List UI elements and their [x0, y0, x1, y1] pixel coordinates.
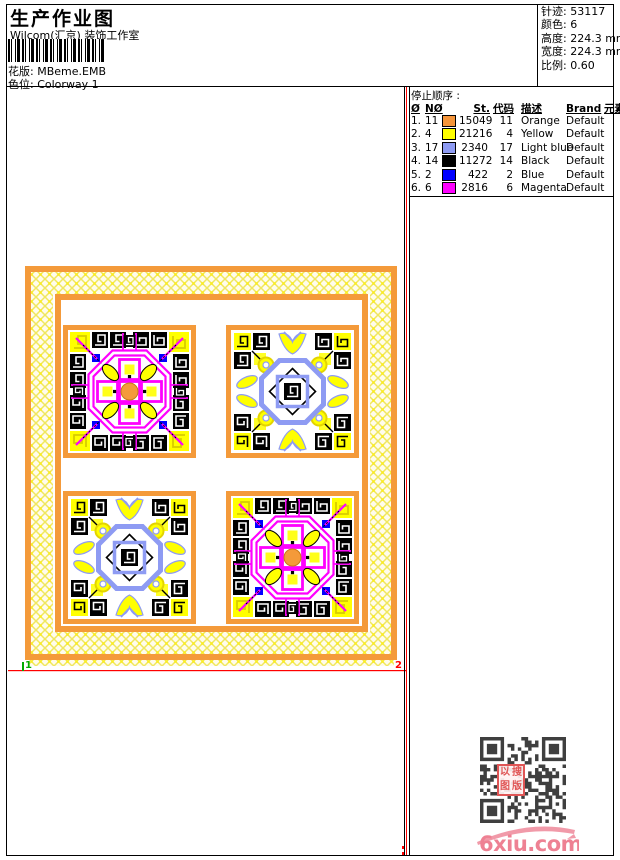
- logo-text: 6xiu.com: [479, 832, 579, 856]
- code-cell: 2: [490, 169, 515, 181]
- site-logo: 6xiu.com: [477, 822, 579, 856]
- description-cell: Black: [515, 155, 564, 167]
- col-element: 元素: [604, 101, 620, 116]
- table-row: 3. 17 2340 17 Light blue Default: [411, 141, 612, 154]
- brand-cell: Default: [564, 128, 604, 140]
- stat-row: 颜色: 6: [541, 18, 613, 31]
- seq-cell: 2.: [411, 128, 425, 140]
- color-swatch: [442, 169, 456, 181]
- table-row: 2. 4 21216 4 Yellow Default: [411, 128, 612, 141]
- design-stats-panel: 针迹: 53117 颜色: 6 高度: 224.3 mm 宽度: 224.3 m…: [541, 5, 613, 72]
- stat-value: 224.3 mm: [570, 45, 620, 58]
- col-stitches: St.: [459, 103, 490, 115]
- stat-label: 比例:: [541, 59, 567, 72]
- description-cell: Orange: [515, 115, 564, 127]
- seq-cell: 3.: [411, 142, 425, 154]
- color-swatch: [442, 182, 456, 194]
- colorway-value: Colorway 1: [37, 78, 98, 91]
- stamp-char: 图: [500, 782, 510, 792]
- description-cell: Yellow: [515, 128, 564, 140]
- code-cell: 6: [490, 182, 515, 194]
- description-cell: Blue: [515, 169, 564, 181]
- col-slot: Ø: [411, 103, 425, 115]
- stat-row: 宽度: 224.3 mm: [541, 45, 613, 58]
- col-brand: Brand: [564, 103, 604, 115]
- stat-label: 针迹:: [541, 5, 567, 18]
- stat-label: 高度:: [541, 32, 567, 45]
- needle-cell: 4: [425, 128, 442, 140]
- stitches-cell: 11272: [459, 155, 490, 167]
- color-swatch: [442, 142, 456, 154]
- seq-cell: 4.: [411, 155, 425, 167]
- stat-value: 224.3 mm: [570, 32, 620, 45]
- stitches-cell: 21216: [459, 128, 490, 140]
- stamp-char: 版: [512, 782, 522, 792]
- stop-sequence-rows: 1. 11 15049 11 Orange Default 2. 4 21216…: [411, 114, 612, 194]
- stop-table-bottom-line: [409, 196, 614, 197]
- header-divider-line: [537, 4, 538, 86]
- stat-row: 高度: 224.3 mm: [541, 32, 613, 45]
- col-needle: NØ: [425, 103, 442, 115]
- seq-cell: 5.: [411, 169, 425, 181]
- stop-sequence-panel: 停止顺序 : Ø NØ St. 代码 描述 Brand 元素 1. 11 150…: [411, 88, 612, 195]
- seq-cell: 1.: [411, 115, 425, 127]
- stat-label: 颜色:: [541, 18, 567, 31]
- stop-sequence-title: 停止顺序 :: [411, 88, 612, 101]
- description-cell: Magenta: [515, 182, 564, 194]
- stat-row: 针迹: 53117: [541, 5, 613, 18]
- table-row: 5. 2 422 2 Blue Default: [411, 168, 612, 181]
- needle-cell: 2: [425, 169, 442, 181]
- description-cell: Light blue: [515, 142, 564, 154]
- needle-cell: 6: [425, 182, 442, 194]
- stitches-cell: 2340: [459, 142, 490, 154]
- stat-row: 比例: 0.60: [541, 59, 613, 72]
- stat-value: 0.60: [570, 59, 595, 72]
- stitches-cell: 15049: [459, 115, 490, 127]
- table-row: 6. 6 2816 6 Magenta Default: [411, 181, 612, 194]
- needle-cell: 17: [425, 142, 442, 154]
- colorway-label: 色位:: [8, 78, 34, 91]
- barcode: [8, 39, 105, 62]
- col-description: 描述: [515, 101, 564, 116]
- column-divider-right: [409, 86, 410, 855]
- col-code: 代码: [490, 101, 515, 116]
- stamp-char: 以: [500, 768, 510, 778]
- stat-value: 53117: [570, 5, 605, 18]
- color-swatch: [442, 155, 456, 167]
- needle-cell: 11: [425, 115, 442, 127]
- stitches-cell: 422: [459, 169, 490, 181]
- stop-sequence-header-row: Ø NØ St. 代码 描述 Brand 元素: [411, 101, 612, 114]
- seq-cell: 6.: [411, 182, 425, 194]
- code-cell: 11: [490, 115, 515, 127]
- design-boundary-vertical-red-line: [406, 87, 407, 855]
- colorway-row: 色位: Colorway 1: [8, 76, 99, 92]
- column-divider-left: [404, 86, 405, 855]
- qr-stamp: 以 搜 图 版: [497, 764, 525, 796]
- brand-cell: Default: [564, 155, 604, 167]
- stat-label: 宽度:: [541, 45, 567, 58]
- code-cell: 14: [490, 155, 515, 167]
- brand-cell: Default: [564, 115, 604, 127]
- brand-cell: Default: [564, 169, 604, 181]
- brand-cell: Default: [564, 142, 604, 154]
- code-cell: 4: [490, 128, 515, 140]
- needle-cell: 14: [425, 155, 442, 167]
- stat-value: 6: [570, 18, 577, 31]
- color-swatch: [442, 128, 456, 140]
- table-row: 4. 14 11272 14 Black Default: [411, 155, 612, 168]
- stitches-cell: 2816: [459, 182, 490, 194]
- code-cell: 17: [490, 142, 515, 154]
- table-row: 1. 11 15049 11 Orange Default: [411, 114, 612, 127]
- brand-cell: Default: [564, 182, 604, 194]
- stamp-char: 搜: [512, 768, 522, 778]
- color-swatch: [442, 115, 456, 127]
